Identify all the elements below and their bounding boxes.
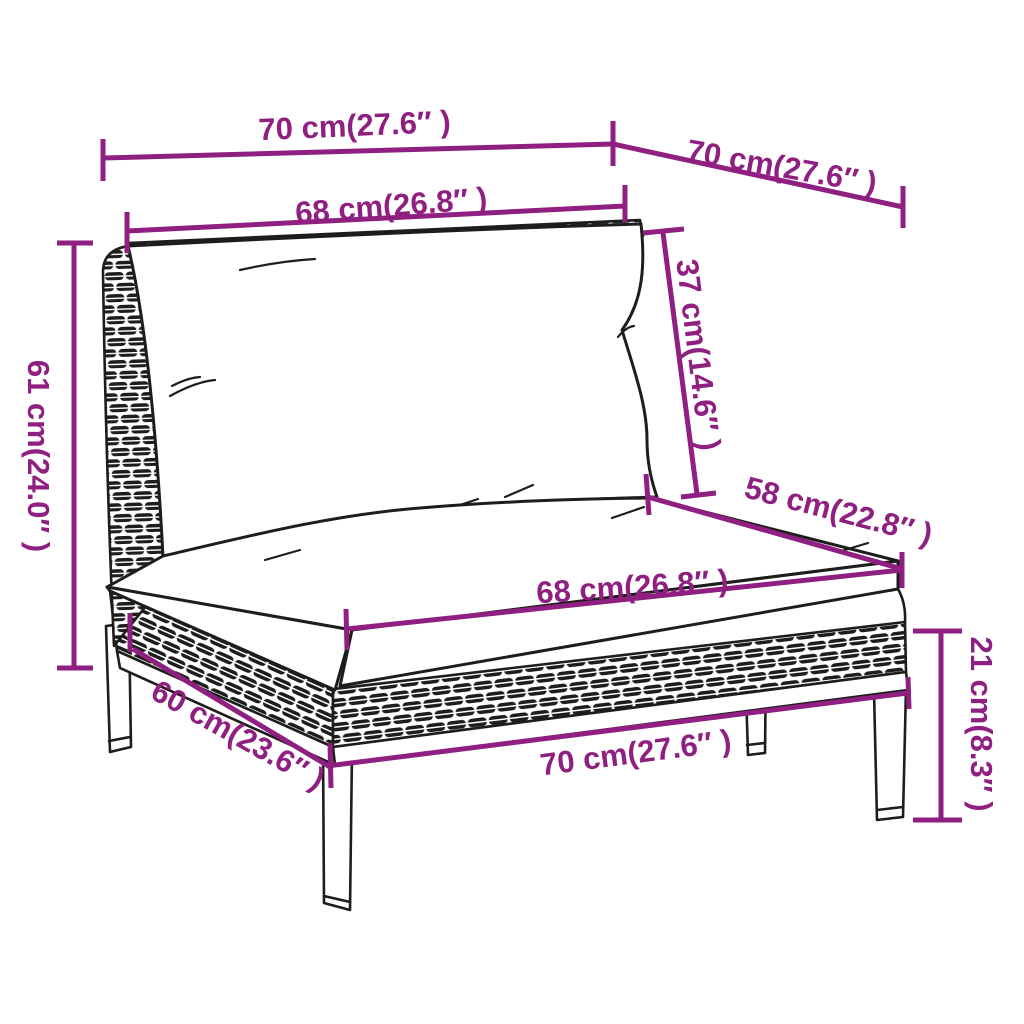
sofa-illustration [103,220,908,910]
sofa-leg-front-right [874,688,906,820]
seat-cushion-corner-line [898,589,905,622]
dim-back-cushion-width-label: 68 cm(26.8″ ) [294,181,488,231]
dim-leg-height-line [913,631,962,820]
dim-top-width-label: 70 cm(27.6″ ) [258,104,452,147]
dim-back-height-line [57,243,93,668]
dim-leg-height-label: 21 cm(8.3″ ) [964,636,999,811]
dimension-diagram: 70 cm(27.6″ ) 70 cm(27.6″ ) 68 cm(26.8″ … [0,0,1024,1024]
dim-top-depth-label: 70 cm(27.6″ ) [684,133,879,201]
dim-back-height [57,243,93,668]
dim-back-height-label: 61 cm(24.0″ ) [21,360,56,552]
dimension-diagram-page: 70 cm(27.6″ ) 70 cm(27.6″ ) 68 cm(26.8″ … [0,0,1024,1024]
dim-leg-height [913,631,962,820]
